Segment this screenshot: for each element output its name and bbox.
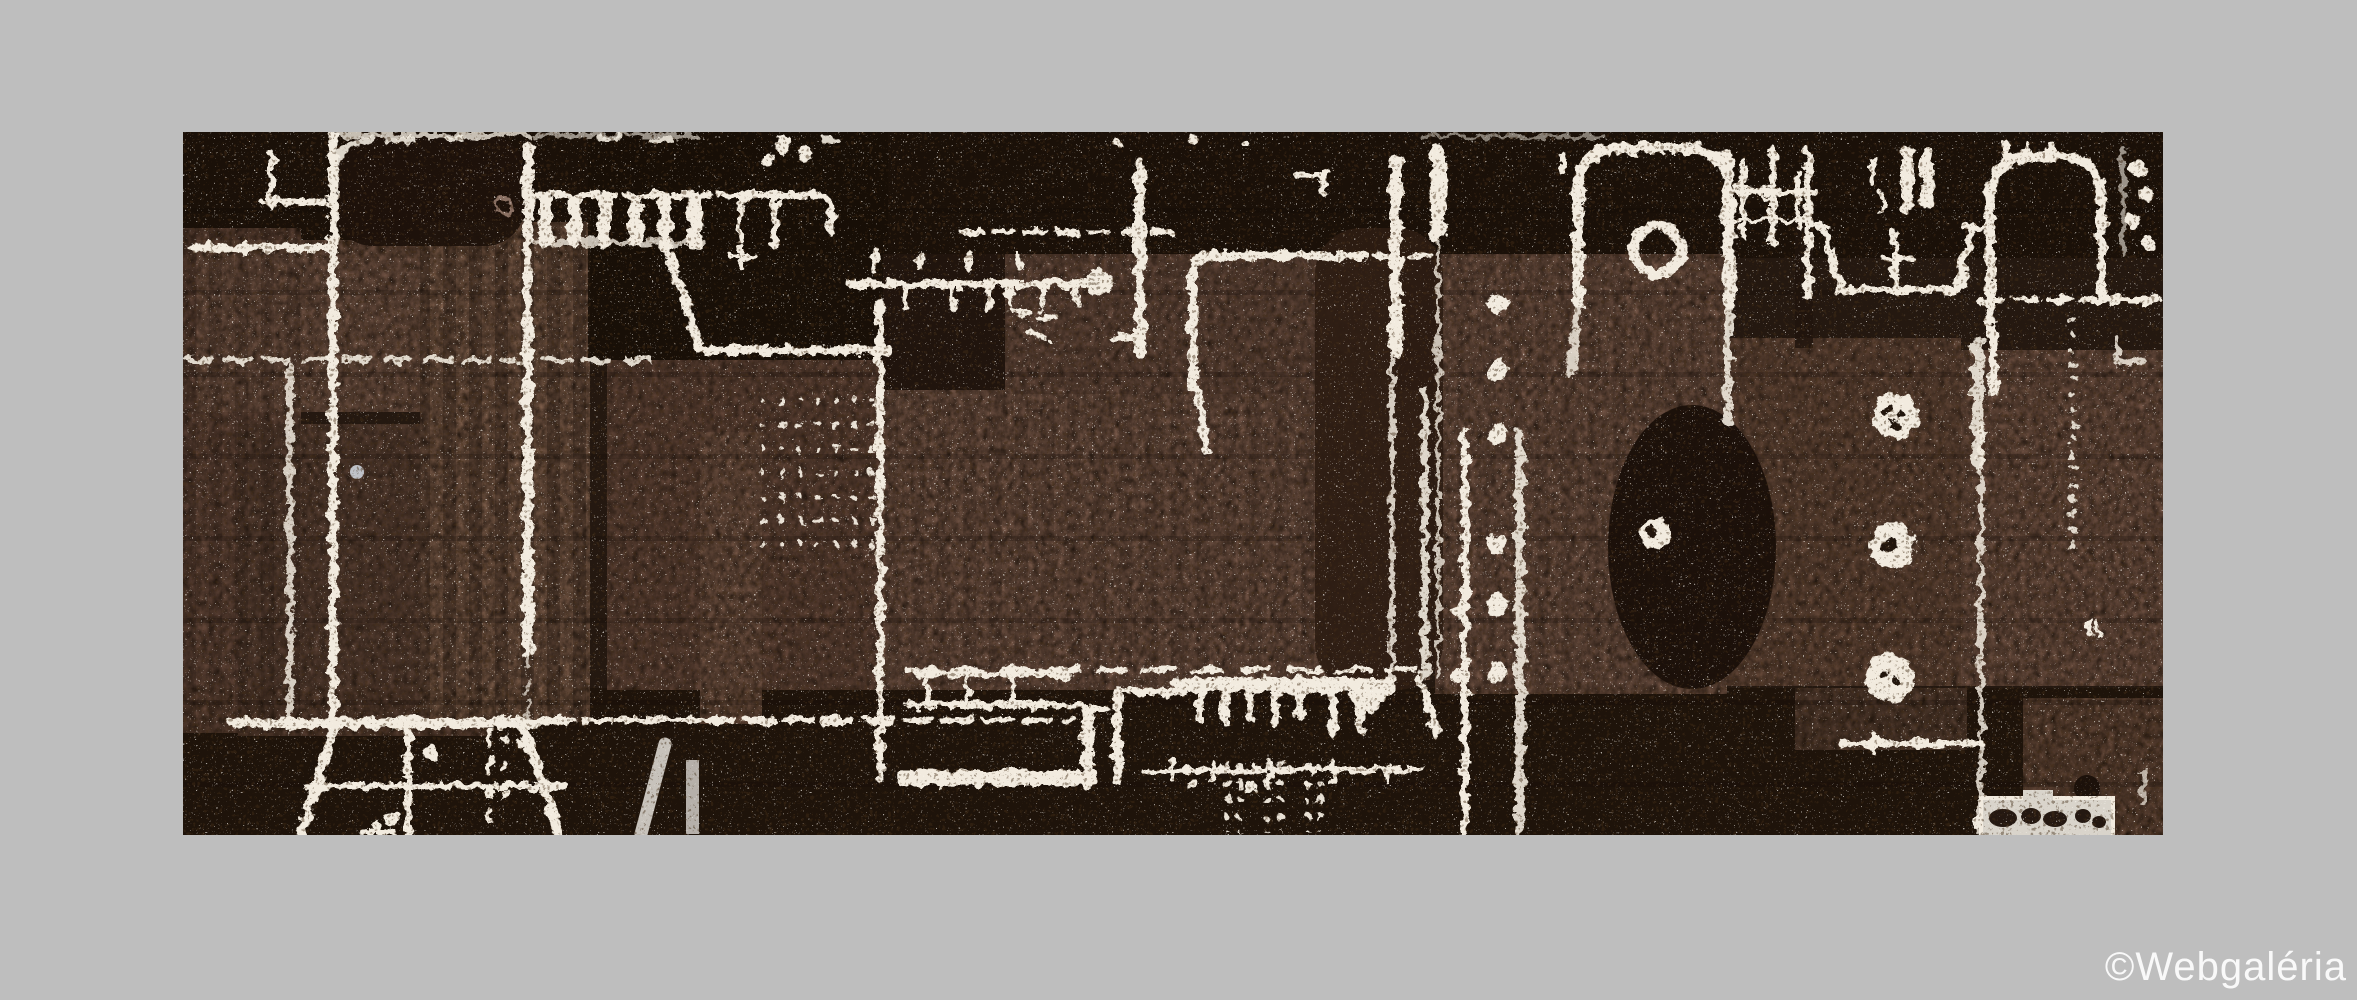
- artwork-image: [183, 132, 2163, 835]
- artwork-graphic: [183, 132, 2163, 835]
- watermark: ©Webgaléria: [2105, 945, 2347, 990]
- page-background: ©Webgaléria: [0, 0, 2357, 1000]
